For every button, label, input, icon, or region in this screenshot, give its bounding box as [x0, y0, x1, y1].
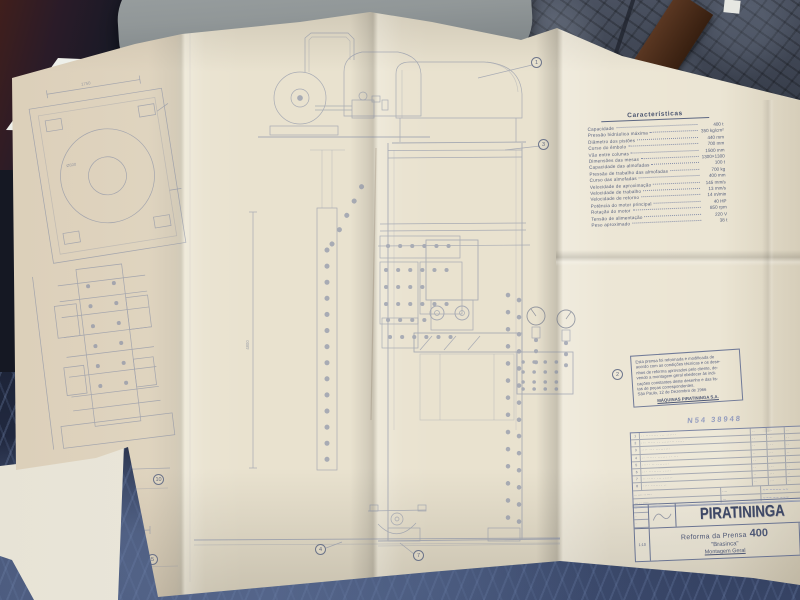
- dotted-leader: [616, 124, 697, 128]
- part-cell: ··: [786, 462, 800, 469]
- note-lines: Esta prensa foi reformada e modificada d…: [635, 353, 737, 397]
- gauges-and-panel: [517, 307, 575, 394]
- dotted-leader: [631, 150, 699, 154]
- drawing-number-stamp: N54 38948: [687, 414, 742, 425]
- scale-cell: 1:10: [635, 529, 651, 562]
- characteristics-title: Características: [601, 109, 709, 122]
- part-cell: ··: [752, 464, 768, 471]
- left-elevation-view: [32, 260, 175, 450]
- part-cell: ···: [768, 463, 786, 470]
- company-logo-cell: [649, 504, 677, 528]
- parts-rows: 1 ·· ········ ··· ······ ·· ··· ·· 2 ···…: [631, 426, 800, 490]
- part-number: 8: [633, 483, 642, 490]
- callout-2: 2: [612, 369, 623, 380]
- dotted-leader: [650, 130, 698, 133]
- part-cell: ···: [769, 477, 787, 484]
- drawing-subtitle: Montagem Geral: [705, 548, 746, 556]
- part-cell: ··: [751, 428, 767, 435]
- callout-4: 4: [315, 544, 326, 555]
- part-number: 7: [633, 476, 642, 483]
- part-cell: ··: [751, 435, 767, 442]
- part-number: 1: [631, 433, 640, 440]
- part-cell: ··: [785, 434, 800, 441]
- dotted-leader: [643, 188, 700, 191]
- part-cell: ···: [767, 427, 785, 434]
- part-cell: ···: [768, 456, 786, 463]
- part-cell: ···: [768, 449, 786, 456]
- part-cell: ··: [751, 442, 767, 449]
- part-cell: ···: [767, 434, 785, 441]
- dotted-leader: [654, 201, 701, 204]
- company-name-cell: PIRATININGA: [676, 498, 800, 526]
- dotted-leader: [641, 194, 700, 197]
- characteristics-list: Capacidade 400 t Pressão hidráulica máxi…: [587, 121, 727, 229]
- svg-text:4800: 4800: [245, 340, 250, 350]
- part-number: 3: [631, 447, 640, 454]
- part-cell: ··: [785, 426, 800, 433]
- callout-10: 10: [153, 474, 164, 485]
- dotted-leader: [628, 143, 698, 147]
- drawing-title-cell: Reforma da Prensa 400 "Brasinca" Montage…: [650, 523, 800, 561]
- client-name: "Brasinca": [711, 541, 739, 548]
- part-number: 2: [631, 440, 640, 447]
- press-side-view: [378, 62, 560, 546]
- part-cell: ··: [752, 449, 768, 456]
- middle-column-view: 4800: [190, 32, 560, 582]
- project-title: Reforma da Prensa: [681, 532, 747, 542]
- right-panel-content: Características Capacidade 400 t Pressão…: [572, 82, 800, 595]
- part-cell: ··: [786, 469, 800, 476]
- part-cell: ··: [787, 477, 800, 484]
- part-cell: ··: [752, 471, 768, 478]
- part-cell: ··: [785, 441, 800, 448]
- dotted-leader: [645, 214, 702, 217]
- approval-cell: ··: [634, 520, 648, 528]
- plan-view: 1750 Ø500: [26, 69, 190, 263]
- dotted-leader: [652, 162, 700, 165]
- part-number: 4: [632, 455, 641, 462]
- pump-unit: [258, 33, 430, 137]
- svg-text:1750: 1750: [81, 80, 92, 87]
- part-number: 5: [632, 462, 641, 469]
- dotted-leader: [670, 169, 699, 171]
- parts-table: 1 ·· ········ ··· ······ ·· ··· ·· 2 ···…: [630, 425, 800, 508]
- approval-cells: ······: [634, 505, 650, 529]
- part-number: 6: [632, 469, 641, 476]
- callout-3: 3: [538, 139, 549, 150]
- spec-label: Peso aproximado: [591, 221, 630, 229]
- yoke-detail: [326, 505, 426, 554]
- part-cell: ···: [767, 442, 785, 449]
- photo-of-blueprint: 1750 Ø500: [0, 0, 800, 600]
- note-box: Esta prensa foi reformada e modificada d…: [630, 349, 743, 408]
- callout-1: 1: [531, 57, 542, 68]
- callout-7: 7: [413, 550, 424, 561]
- dotted-leader: [641, 156, 699, 159]
- characteristics-block: Características Capacidade 400 t Pressão…: [587, 108, 728, 229]
- part-cell: ··: [752, 457, 768, 464]
- logo-squiggle: [649, 504, 676, 529]
- part-cell: ··: [753, 478, 769, 485]
- fold-shadow-line: [371, 148, 376, 420]
- title-block: ······ PIRATININGA 1:10 Reforma da Pr: [633, 497, 800, 562]
- part-cell: ···: [768, 470, 786, 477]
- press-tonnage: 400: [749, 527, 768, 540]
- spec-value: 38 t: [703, 217, 727, 224]
- part-cell: ··: [786, 455, 800, 462]
- dotted-leader: [653, 182, 700, 185]
- company-name: PIRATININGA: [699, 502, 784, 524]
- white-sticker: [723, 0, 740, 14]
- part-cell: ··: [786, 448, 800, 455]
- svg-text:Ø500: Ø500: [66, 161, 77, 168]
